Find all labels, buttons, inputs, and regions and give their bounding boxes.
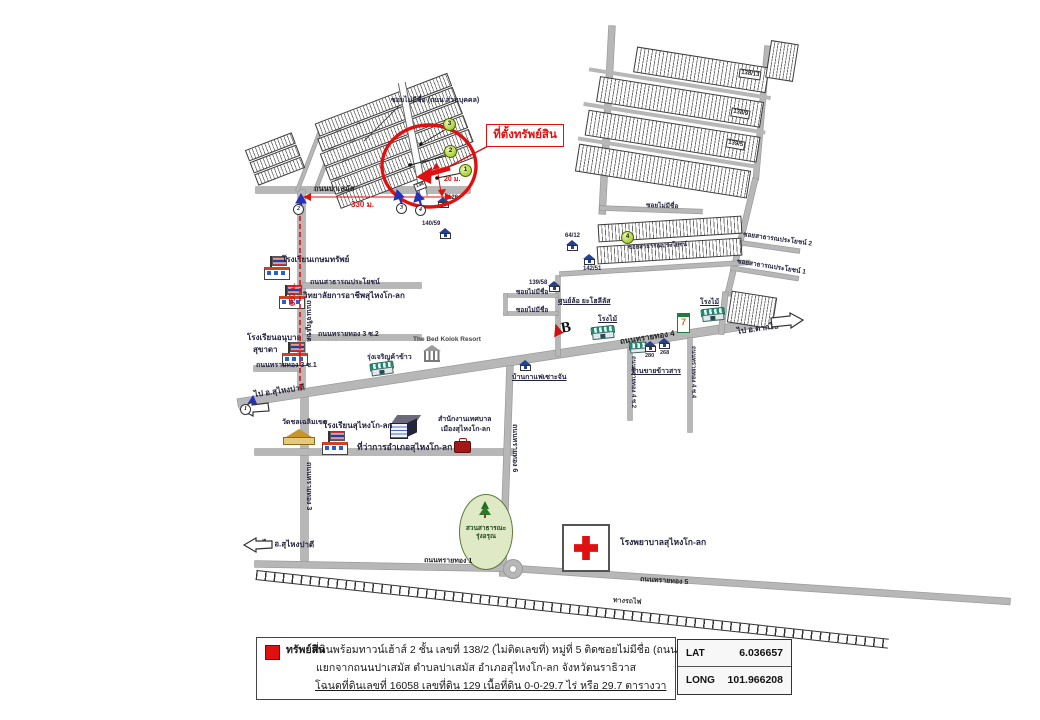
label-municipality-line1: สำนักงานเทศบาล	[438, 416, 491, 424]
label-dim-330: 330 ม.	[351, 200, 374, 209]
label-road-pasemas: ถนนปาเสมัส	[314, 185, 354, 194]
label-rice-shop: ร้านขายข้าวสาร	[631, 368, 681, 376]
label-coffee-house: บ้านกาแฟเซาะจัน	[512, 374, 567, 382]
right-extra-block	[765, 40, 799, 82]
label-house-128: 128	[448, 195, 458, 202]
label-kasemsap-school: โรงเรียนเกษมทรัพย์	[282, 255, 349, 264]
warehouse-door-icon	[710, 316, 715, 321]
wood-factory-icon-1	[590, 325, 615, 340]
house-door-icon	[553, 287, 556, 290]
house-door-icon	[663, 344, 666, 347]
resort-columns-icon	[424, 351, 440, 362]
house-door-icon	[571, 246, 574, 249]
label-to-padi-south: ไป อ.สุไหงปาดี	[263, 539, 314, 550]
long-label: LONG	[686, 675, 715, 686]
label-kolok-school: โรงเรียนสุไหงโก-ลก	[323, 421, 392, 430]
wood-factory-icon-2	[700, 307, 725, 322]
label-road-charoenkhet: ถนนเจริญเขต	[304, 300, 312, 342]
rice-mill-icon	[369, 360, 395, 376]
label-soi-noname-a: ซอยไม่มีชื่อ	[516, 289, 548, 296]
house-icon-280	[644, 341, 656, 351]
label-road-saithong5: ถนนทรายทอง 5	[640, 576, 689, 587]
house-icon-142-51	[583, 254, 595, 264]
map-canvas: 138/13 138/9 139/5 138	[0, 0, 1040, 720]
label-municipality-line2: เมืองสุไหงโก-ลก	[441, 426, 490, 434]
office-front-icon	[390, 423, 408, 439]
legend-line-3: โฉนดที่ดินเลขที่ 16058 เลขที่ดิน 129 เนื…	[315, 680, 666, 693]
house-door-icon	[524, 366, 527, 369]
property-callout-box: ที่ตั้งทรัพย์สิน	[486, 124, 564, 147]
label-anuban-line2: สุขาดา	[253, 345, 278, 354]
label-soi-noname-b: ซอยไม่มีชื่อ	[516, 307, 548, 314]
right-plot-grid	[575, 38, 772, 199]
lat-label: LAT	[686, 648, 705, 659]
roundabout	[504, 560, 522, 578]
label-house-142-51: 142/51	[583, 266, 601, 273]
house-icon-140-59	[439, 228, 451, 238]
temple-roof-icon	[286, 429, 312, 437]
green-marker-1: 1	[459, 164, 472, 177]
house-icon-139-58	[548, 281, 560, 291]
school-windows-icon	[267, 271, 271, 275]
label-hospital: โรงพยาบาลสุไหงโก-ลก	[620, 538, 706, 548]
label-temple: วัดชลเฉลิมเขต	[282, 419, 327, 427]
park-label-2: รุ่งอรุณ	[460, 533, 512, 541]
school-windows-icon	[282, 300, 286, 304]
warehouse-door-icon	[600, 334, 605, 339]
house-door-icon	[442, 203, 445, 206]
label-railway: ทางรถไฟ	[613, 597, 642, 607]
hospital-box	[562, 524, 610, 572]
label-college: วิทยาลัยการอาชีพสุไหงโก-ลก	[303, 291, 405, 300]
temple-base-icon	[283, 437, 315, 445]
thai-flag-icon	[290, 342, 305, 352]
left-plot-grid	[245, 132, 305, 185]
label-resort: The Bed Kolok Resort	[413, 336, 481, 343]
house-icon-64-12	[566, 240, 578, 250]
temple-icon	[283, 429, 315, 445]
green-marker-3: 3	[443, 118, 456, 131]
house-icon-coffee	[519, 360, 531, 370]
label-wood-factory-2: โรงไม้	[700, 299, 719, 307]
pine-tree-icon	[478, 501, 492, 518]
legend-property-swatch	[265, 645, 280, 660]
label-house-140-59: 140/59	[422, 221, 440, 228]
school-windows-icon	[285, 357, 289, 361]
label-house-280: 280	[645, 353, 654, 359]
long-block-bottom	[597, 238, 743, 265]
school-windows-icon	[325, 446, 329, 450]
school-icon-anuban	[282, 342, 308, 362]
label-wood-factory-1: โรงไม้	[598, 316, 617, 324]
label-road-saithong3: ถนนทรายทอง 3	[304, 462, 312, 510]
road-soi-noname-connector	[504, 294, 507, 315]
legend-line-2: แยกจากถนนปาเสมัส ตำบลปาเสมัส อำเภอสุไหงโ…	[316, 662, 636, 675]
green-marker-2: 2	[444, 145, 457, 158]
label-soi-noname-right: ซอยไม่มีชื่อ	[646, 202, 679, 211]
coordinates-box: LAT 6.036657 LONG 101.966208	[677, 639, 792, 695]
route-step-1: 1	[240, 404, 251, 415]
label-road-saithong4-soi2: ถนนทรายทอง 4 ซ.2	[629, 356, 636, 408]
resort-icon	[423, 345, 441, 362]
red-cross-icon	[574, 536, 598, 560]
lat-value: 6.036657	[739, 647, 783, 659]
house-door-icon	[444, 234, 447, 237]
label-road-saithong3-soi2: ถนนทรายทอง 3 ซ.2	[318, 331, 379, 339]
label-house-64-12: 64/12	[565, 233, 580, 240]
label-road-saithong4-soi4: ถนนทรายทอง 4 ซ.4	[689, 346, 696, 398]
route-step-2: 2	[293, 204, 304, 215]
label-district-office: ที่ว่าการอำเภอสุไหงโก-ลก	[357, 443, 452, 453]
district-office-icon	[390, 415, 420, 439]
thai-flag-icon	[330, 431, 345, 441]
label-road-satharana: ถนนสาธารณประโยชน์	[310, 279, 380, 287]
long-value: 101.966208	[728, 674, 783, 686]
label-road-saithong3-soi1: ถนนทรายทอง 3 ซ.1	[256, 362, 317, 370]
warehouse-door-icon	[379, 370, 385, 375]
route-step-3: 3	[396, 203, 407, 214]
label-house-139-58: 139/58	[529, 280, 547, 287]
school-icon-kolok	[322, 431, 348, 451]
bridgestone-logo-icon: B	[554, 316, 577, 339]
lat-row: LAT 6.036657	[678, 640, 791, 666]
house-door-icon	[588, 260, 591, 263]
label-road-saithong1: ถนนทรายทอง 1	[424, 557, 472, 566]
label-dim-20: 20 ม.	[444, 176, 460, 184]
seven-eleven-icon: 7	[677, 313, 690, 333]
green-marker-4: 4	[621, 231, 634, 244]
route-step-4: 4	[415, 205, 426, 216]
office-side-icon	[407, 418, 417, 437]
label-house-268: 268	[660, 350, 669, 356]
house-door-icon	[649, 347, 652, 350]
municipality-icon	[454, 441, 471, 453]
label-rice-mill: รุ่งเจริญค้าข้าว	[367, 354, 412, 362]
label-dim-650: 650 ม.	[288, 283, 297, 306]
legend-line-1: ที่ดินพร้อมทาวน์เฮ้าส์ 2 ชั้น เลขที่ 138…	[312, 644, 727, 657]
label-road-saithong6: ถนนทรายทอง 6	[510, 424, 518, 472]
long-row: LONG 101.966208	[678, 666, 791, 693]
label-tire-shop: ศูนย์ล้อ ยะโฮลีลัส	[558, 298, 611, 306]
label-anuban-line1: โรงเรียนอนุบาล	[247, 333, 301, 342]
label-top-soi: ซอยไม่มีชื่อ (ถนน ส่วนบุคคล)	[391, 97, 479, 105]
